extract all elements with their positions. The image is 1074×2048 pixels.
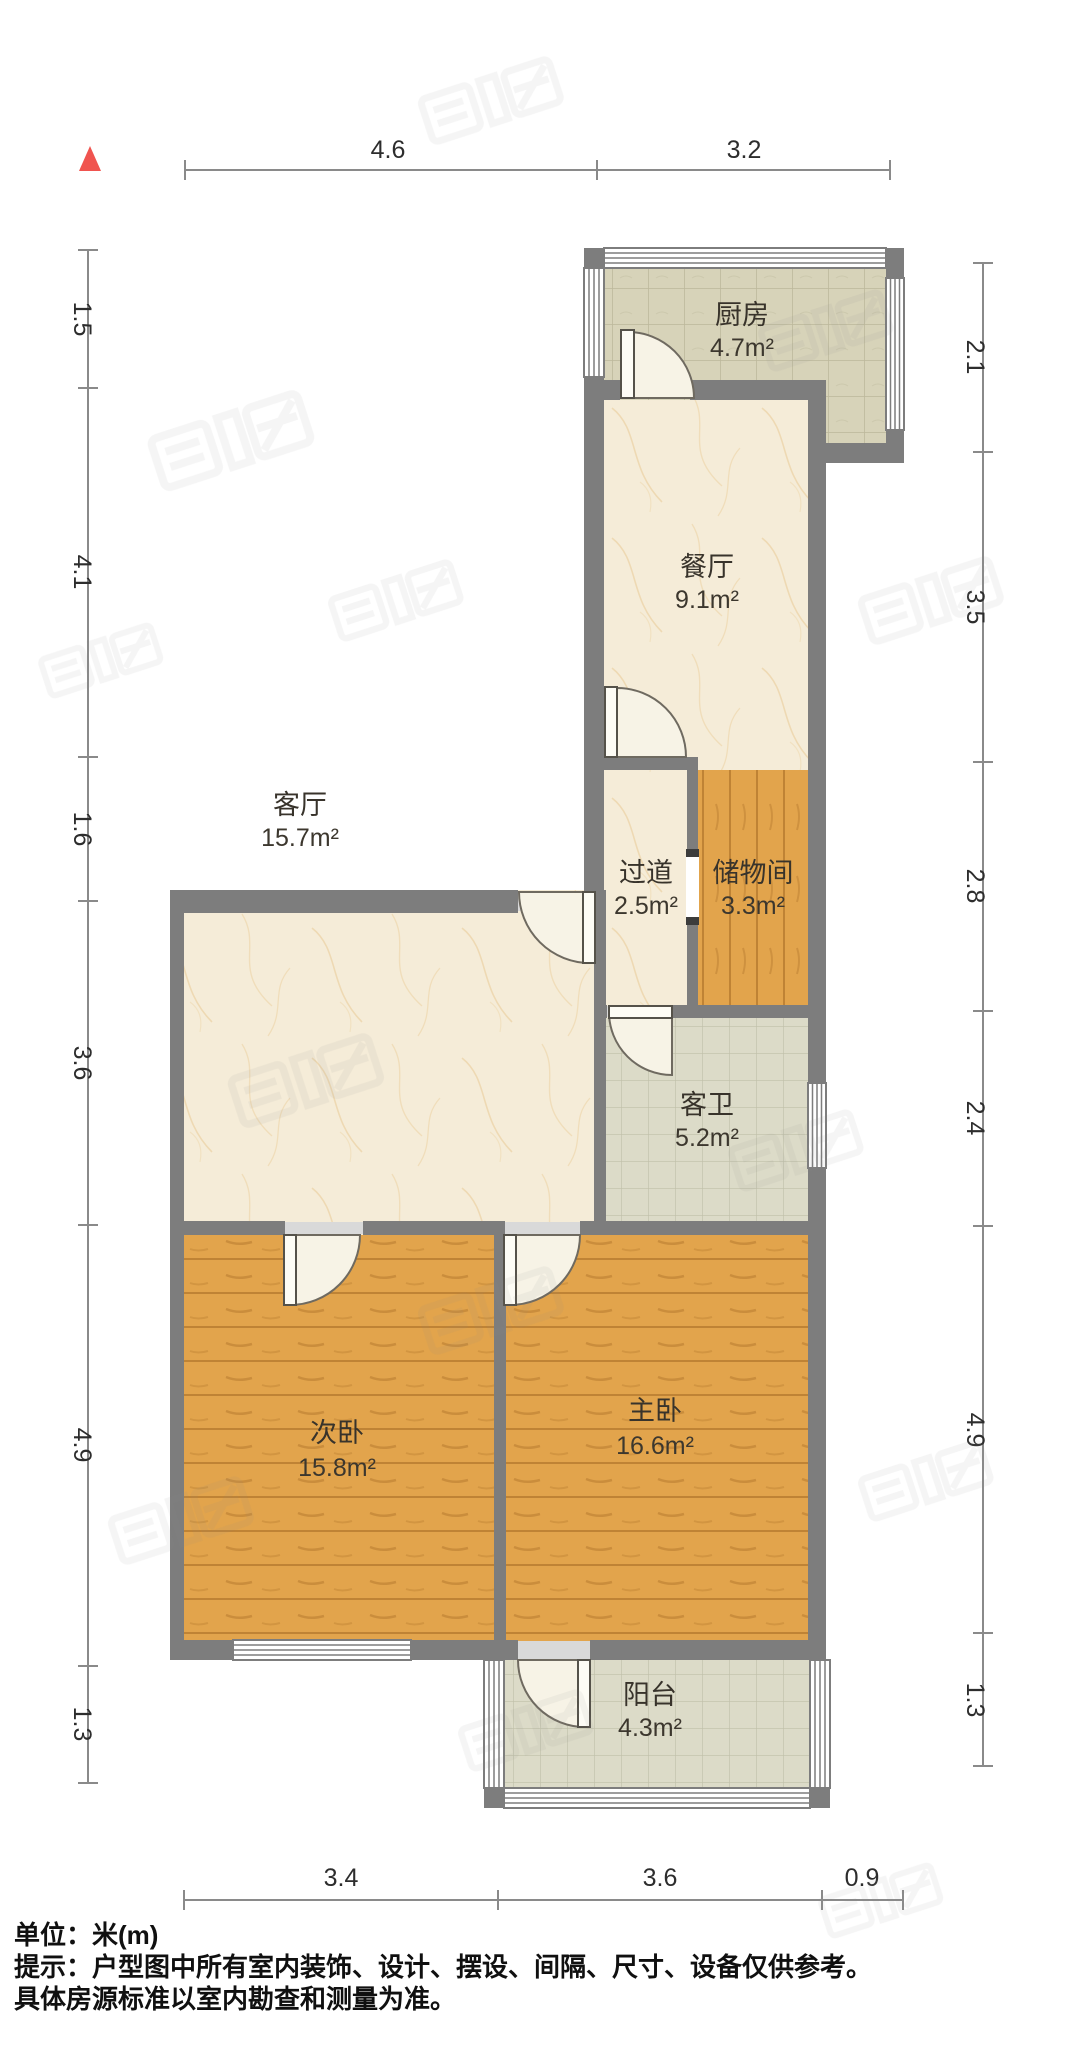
svg-text:2.4: 2.4: [961, 1101, 989, 1136]
svg-text:4.3m²: 4.3m²: [618, 1714, 682, 1742]
svg-text:3.6: 3.6: [643, 1864, 678, 1892]
window-balcony-right: [810, 1660, 830, 1788]
svg-text:阳台: 阳台: [623, 1680, 677, 1710]
svg-text:3.4: 3.4: [324, 1864, 359, 1892]
window-balcony-bottom: [504, 1788, 810, 1808]
window-kitchen-right: [886, 278, 904, 430]
footer-unit: 单位：米(m): [14, 1920, 158, 1950]
svg-text:3.2: 3.2: [727, 136, 762, 164]
svg-text:过道: 过道: [619, 858, 673, 888]
svg-text:2.5m²: 2.5m²: [614, 892, 678, 920]
svg-text:厨房: 厨房: [715, 300, 769, 330]
svg-text:4.6: 4.6: [371, 136, 406, 164]
svg-text:1.3: 1.3: [68, 1707, 96, 1742]
svg-text:主卧: 主卧: [628, 1396, 682, 1426]
svg-text:客厅: 客厅: [273, 790, 327, 820]
svg-text:5.2m²: 5.2m²: [675, 1124, 739, 1152]
svg-text:4.1: 4.1: [68, 555, 96, 590]
svg-text:2.8: 2.8: [961, 869, 989, 904]
footer-tip-line1: 提示：户型图中所有室内装饰、设计、摆设、间隔、尺寸、设备仅供参考。: [14, 1952, 872, 1982]
svg-text:15.8m²: 15.8m²: [298, 1454, 376, 1482]
svg-text:4.9: 4.9: [68, 1428, 96, 1463]
svg-text:1.3: 1.3: [961, 1683, 989, 1718]
svg-text:餐厅: 餐厅: [680, 552, 734, 582]
svg-text:1.5: 1.5: [68, 302, 96, 337]
footer-tip-line2: 具体房源标准以室内勘查和测量为准。: [14, 1984, 456, 2014]
floorplan-canvas: 厨房 4.7m² 餐厅 9.1m² 过道 2.5m² 储物间 3.3m² 客厅 …: [0, 0, 1074, 2048]
svg-text:1.6: 1.6: [68, 812, 96, 847]
svg-text:2.1: 2.1: [961, 340, 989, 375]
svg-text:3.6: 3.6: [68, 1046, 96, 1081]
svg-text:16.6m²: 16.6m²: [616, 1432, 694, 1460]
window-kitchen-top: [604, 248, 886, 268]
window-second-bedroom: [233, 1640, 411, 1660]
room-living-floor: [184, 890, 594, 1235]
floorplan-page: 厨房 4.7m² 餐厅 9.1m² 过道 2.5m² 储物间 3.3m² 客厅 …: [0, 0, 1074, 2048]
svg-text:15.7m²: 15.7m²: [261, 824, 339, 852]
svg-text:客卫: 客卫: [680, 1090, 734, 1120]
window-kitchen-left: [584, 268, 604, 377]
svg-text:储物间: 储物间: [713, 858, 794, 888]
svg-text:3.3m²: 3.3m²: [721, 892, 785, 920]
door-storage-opening: [686, 849, 699, 925]
svg-text:次卧: 次卧: [310, 1418, 364, 1448]
svg-text:9.1m²: 9.1m²: [675, 586, 739, 614]
